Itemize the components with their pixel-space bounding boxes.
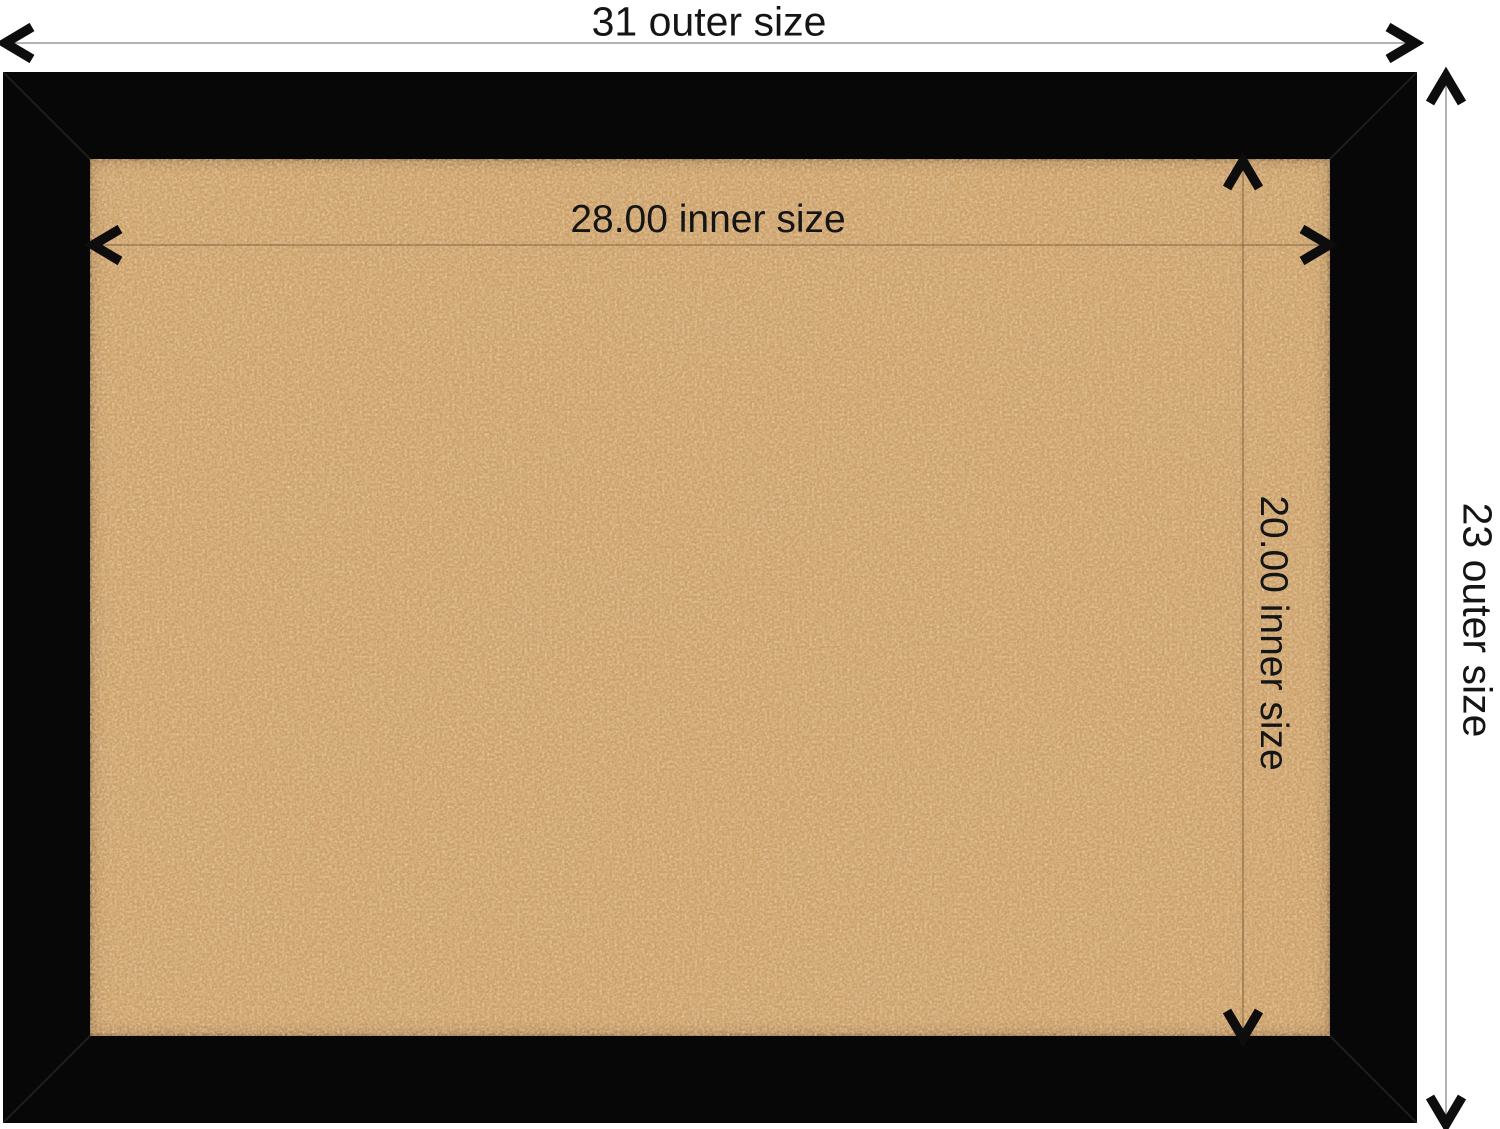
inner-width-label: 28.00 inner size [570, 198, 845, 242]
diagram-canvas: 31 outer size 28.00 inner size 23 outer … [0, 0, 1500, 1129]
arrow-right-icon [1388, 27, 1415, 59]
arrow-up-icon [1430, 76, 1462, 103]
arrow-left-icon [5, 27, 32, 59]
cork-surface [90, 159, 1330, 1036]
outer-width-label: 31 outer size [592, 0, 827, 46]
outer-height-label: 23 outer size [1454, 503, 1500, 738]
cork-texture [90, 159, 1330, 1036]
arrow-down-icon [1430, 1097, 1462, 1124]
inner-height-label: 20.00 inner size [1251, 495, 1295, 770]
